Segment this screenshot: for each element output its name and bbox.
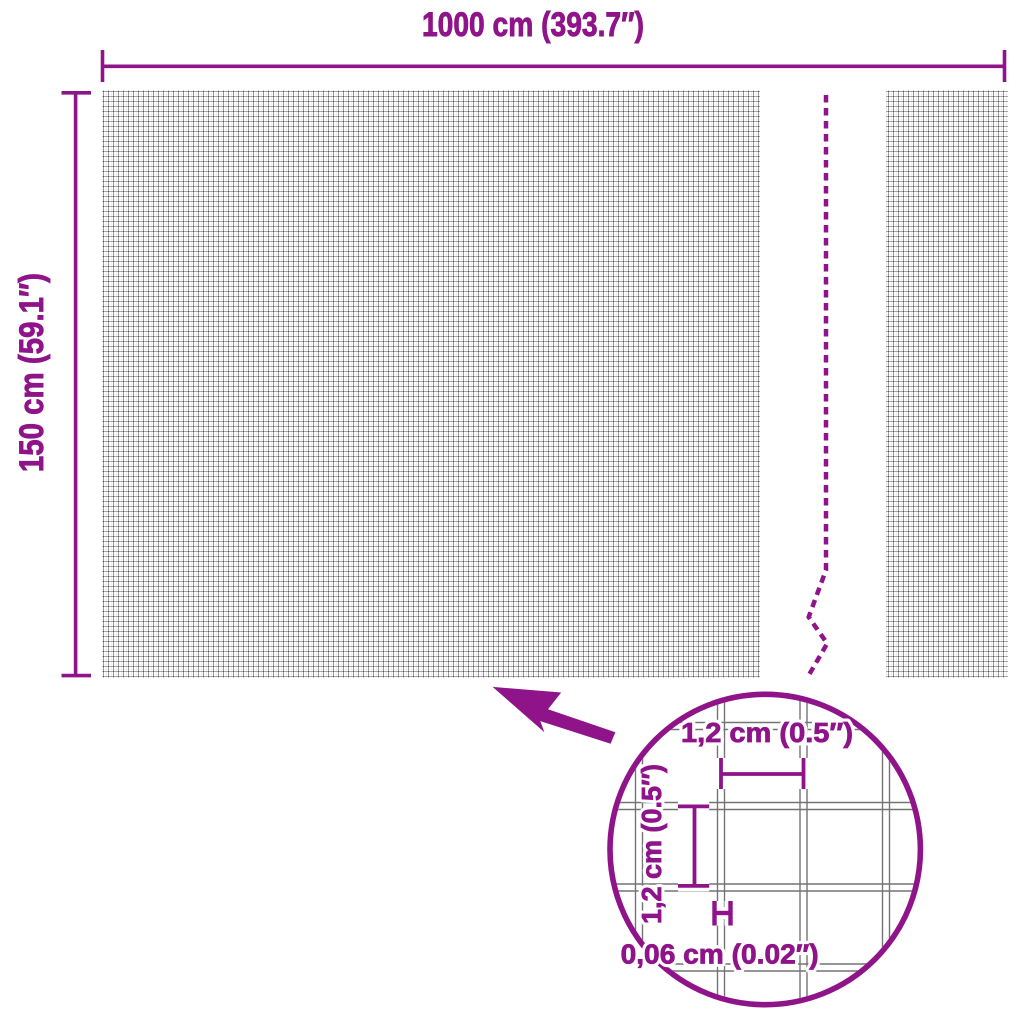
svg-text:1,2 cm (0.5″): 1,2 cm (0.5″): [681, 717, 853, 748]
svg-text:1000 cm (393.7″): 1000 cm (393.7″): [422, 6, 644, 44]
svg-text:150 cm (59.1″): 150 cm (59.1″): [13, 273, 51, 472]
svg-text:1,2 cm (0.5″): 1,2 cm (0.5″): [636, 764, 667, 924]
svg-text:0,06 cm (0.02″): 0,06 cm (0.02″): [621, 939, 819, 970]
